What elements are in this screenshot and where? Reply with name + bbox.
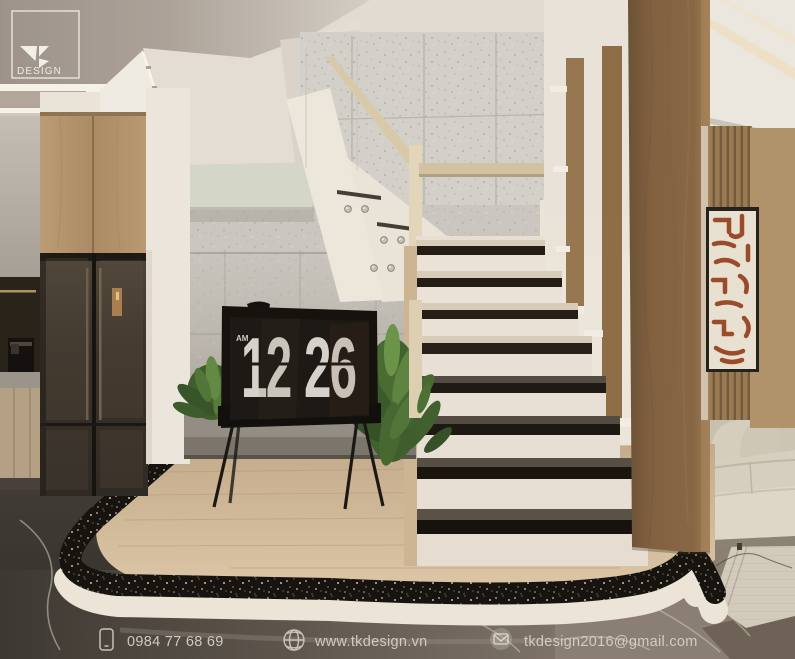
svg-text:0984 77 68 69: 0984 77 68 69 — [127, 634, 224, 650]
svg-text:DESIGN: DESIGN — [17, 66, 62, 77]
svg-text:tkdesign2016@gmail.com: tkdesign2016@gmail.com — [524, 634, 698, 650]
svg-text:www.tkdesign.vn: www.tkdesign.vn — [314, 634, 428, 650]
